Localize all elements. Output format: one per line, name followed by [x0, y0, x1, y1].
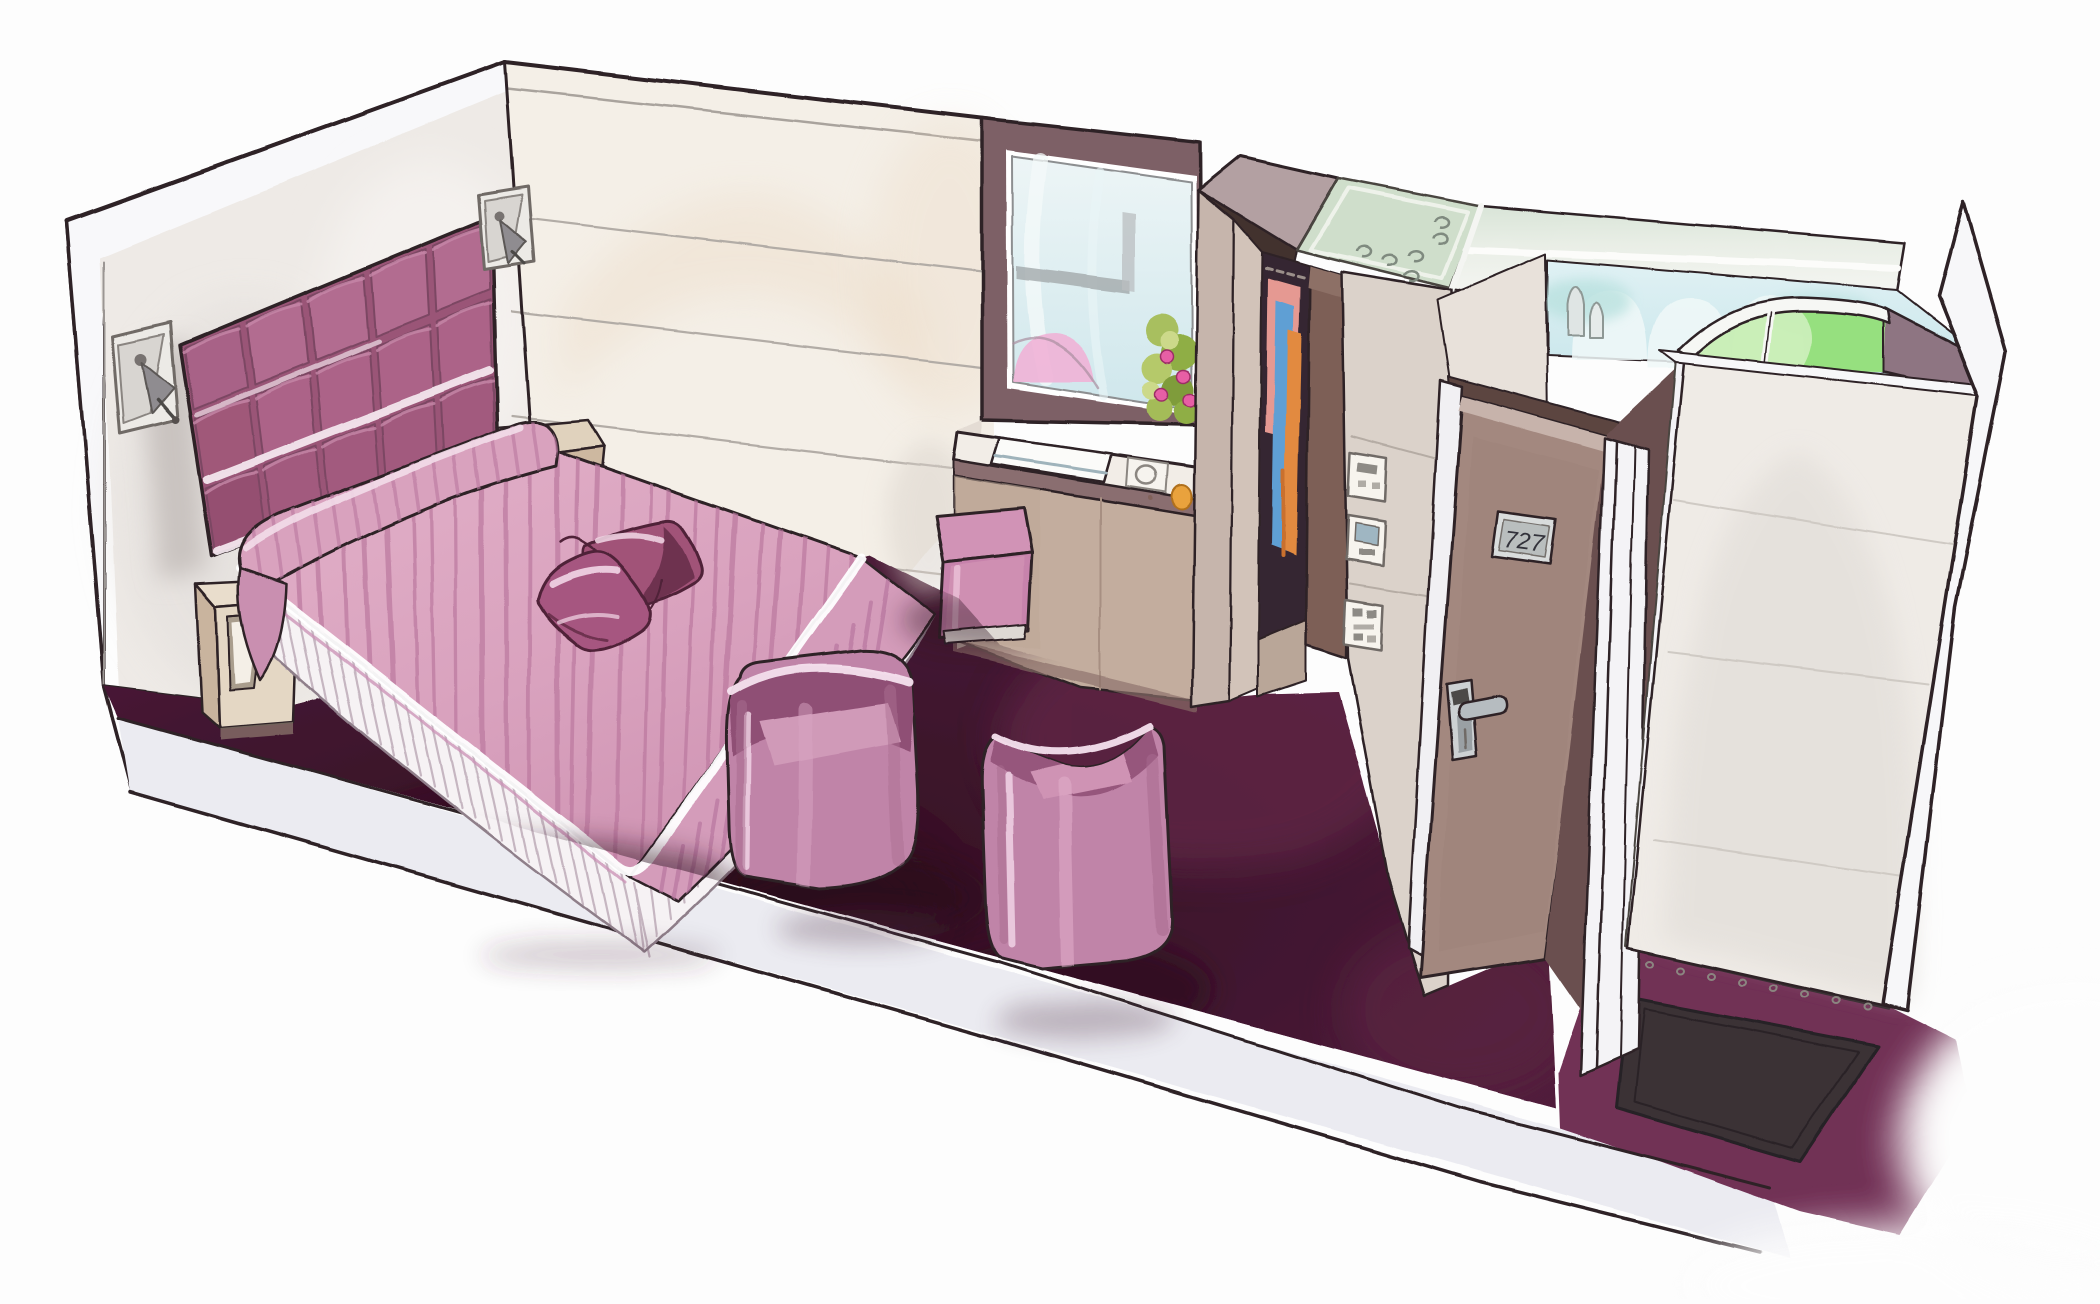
svg-text:727: 727 — [1503, 526, 1548, 558]
